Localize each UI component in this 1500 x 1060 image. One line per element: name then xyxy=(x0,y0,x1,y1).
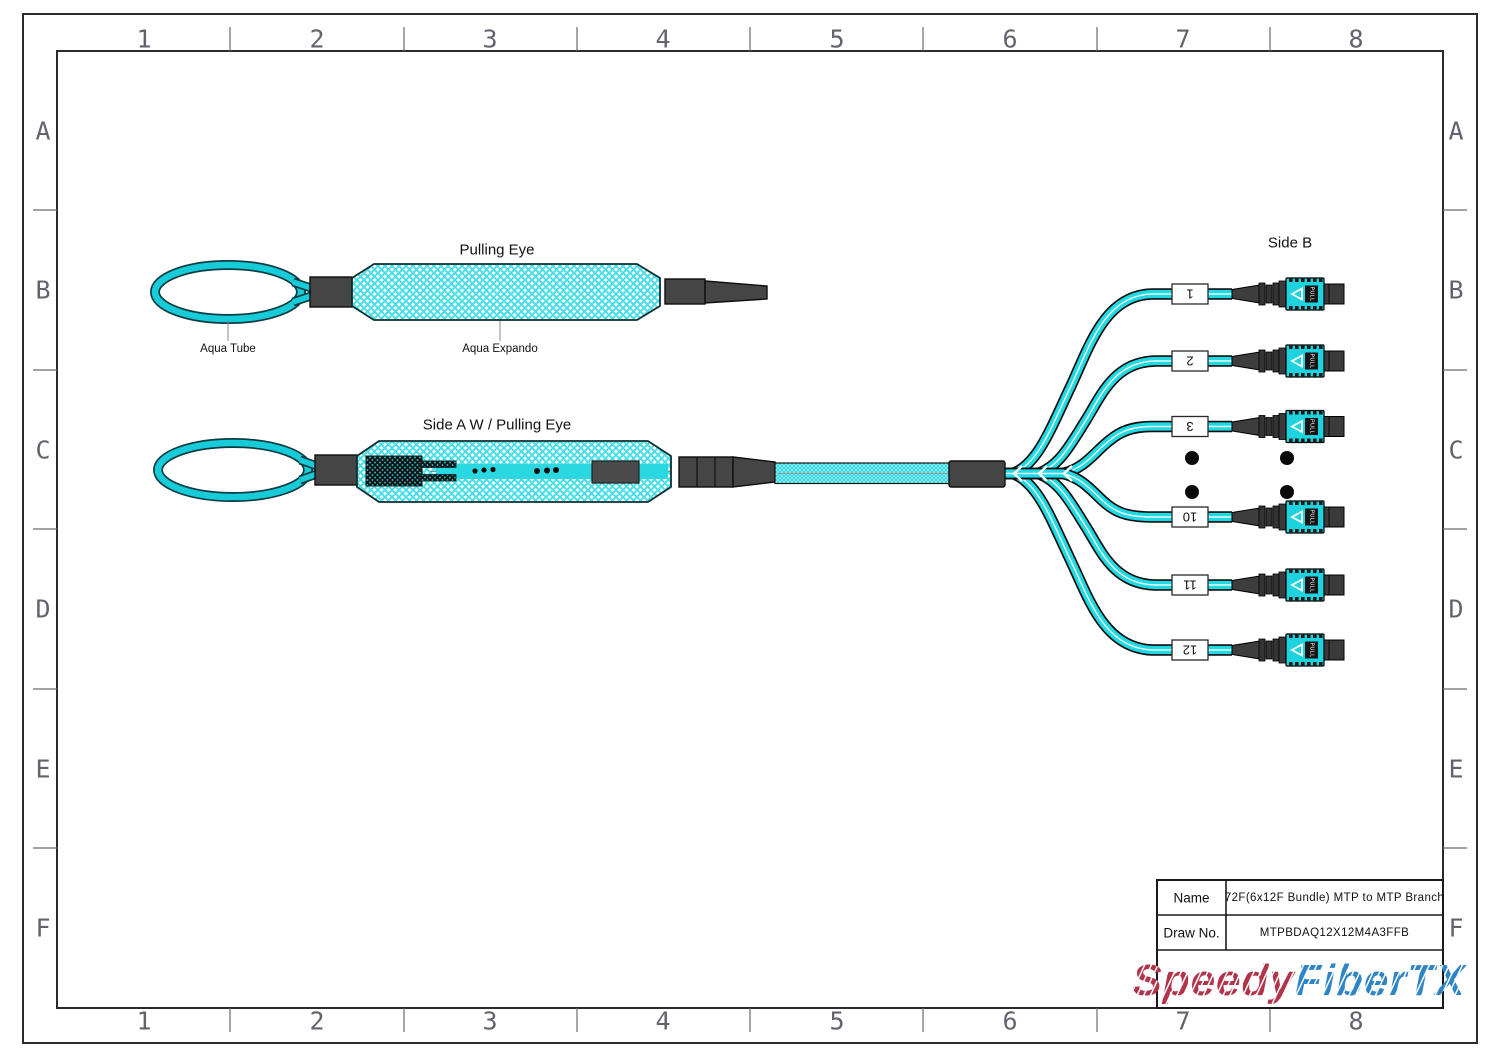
ellipsis-dots xyxy=(1185,451,1294,499)
grid-col-label: 1 xyxy=(136,1007,151,1036)
branch-cable-12 xyxy=(1003,474,1232,651)
side-b-branches: Side B 1 xyxy=(949,235,1344,667)
grid-row-label: C xyxy=(1448,436,1463,465)
grid-col-label: 4 xyxy=(655,25,670,54)
side-b-title: Side B xyxy=(1268,235,1312,252)
pulling-eye-right-ferrule xyxy=(665,279,705,304)
grid-col-label: 7 xyxy=(1175,1007,1190,1036)
drawing-canvas: PULL 1 2 3 4 xyxy=(0,0,1500,1060)
mtp-connector-1 xyxy=(1232,278,1344,310)
side-a-assembly: Side A W / Pulling Eye xyxy=(158,417,1063,503)
aqua-expando-label: Aqua Expando xyxy=(462,343,537,355)
inner-border xyxy=(57,51,1443,1008)
side-a-strain-relief xyxy=(733,457,775,487)
grid-row-label: D xyxy=(1448,595,1463,624)
grid-col-label: 5 xyxy=(829,1007,844,1036)
pulling-eye-detail: Pulling Eye Aqua Tube Aqua Expando xyxy=(155,242,767,356)
side-a-title: Side A W / Pulling Eye xyxy=(423,417,571,434)
grid-col-label: 2 xyxy=(309,1007,324,1036)
speedyfibertx-logo: SpeedyFiberTX xyxy=(1132,956,1467,1005)
title-block: Name 72F(6x12F Bundle) MTP to MTP Branch… xyxy=(1132,880,1467,1008)
aqua-expando-sleeve xyxy=(352,264,660,320)
mtp-connector-12 xyxy=(1232,634,1344,666)
mtp-connector-10 xyxy=(1232,501,1344,533)
logo-part-fibertx: FiberTX xyxy=(1295,956,1467,1005)
branch-label-1: 1 xyxy=(1172,284,1208,304)
furcation-block xyxy=(949,461,1005,487)
draw-no-value: MTPBDAQ12X12M4A3FFB xyxy=(1260,927,1409,939)
grid-row-label: F xyxy=(35,914,50,943)
branch-label-2: 2 xyxy=(1172,351,1208,371)
branch-label-text: 11 xyxy=(1183,578,1197,593)
grid-col-label: 3 xyxy=(482,25,497,54)
side-a-exit-connector xyxy=(679,457,733,487)
branch-cable-1 xyxy=(1003,294,1232,474)
side-a-left-ferrule xyxy=(315,455,357,485)
branch-label-text: 10 xyxy=(1183,510,1197,525)
grid-row-label: E xyxy=(35,755,50,784)
branch-label-text: 3 xyxy=(1186,419,1193,434)
aqua-tube-label: Aqua Tube xyxy=(200,343,256,355)
name-label: Name xyxy=(1173,891,1209,906)
pulling-eye-title: Pulling Eye xyxy=(459,242,534,259)
grid-row-label: F xyxy=(1448,914,1463,943)
engineering-drawing-page: PULL 1 2 3 4 xyxy=(0,0,1500,1060)
grid-col-label: 3 xyxy=(482,1007,497,1036)
grid-row-label: B xyxy=(35,276,50,305)
draw-no-label: Draw No. xyxy=(1163,926,1219,941)
branch-label-12: 12 xyxy=(1172,640,1208,660)
logo-part-speedy: Speedy xyxy=(1132,956,1296,1005)
inner-connector-prong xyxy=(420,461,456,468)
branch-label-10: 10 xyxy=(1172,507,1208,527)
grid-col-label: 7 xyxy=(1175,25,1190,54)
pulling-eye-cone-tip xyxy=(705,281,767,303)
name-value: 72F(6x12F Bundle) MTP to MTP Branch xyxy=(1225,892,1444,904)
branch-label-text: 1 xyxy=(1186,287,1193,302)
mtp-connector-2 xyxy=(1232,345,1344,377)
branch-label-text: 2 xyxy=(1186,354,1193,369)
inner-connector-prong xyxy=(420,475,456,482)
grid-row-label: A xyxy=(1448,117,1463,146)
grid-row-label: B xyxy=(1448,276,1463,305)
grid-col-label: 5 xyxy=(829,25,844,54)
grid-col-label: 1 xyxy=(136,25,151,54)
grid-col-label: 2 xyxy=(309,25,324,54)
inner-crimp-block xyxy=(592,461,639,483)
mtp-connector-11 xyxy=(1232,569,1344,601)
grid-col-label: 6 xyxy=(1002,1007,1017,1036)
grid-row-label: D xyxy=(35,595,50,624)
grid-col-label: 4 xyxy=(655,1007,670,1036)
grid-col-label: 8 xyxy=(1348,25,1363,54)
mtp-connector-3 xyxy=(1232,411,1344,443)
grid-col-label: 6 xyxy=(1002,25,1017,54)
branch-labels: 1 2 3 10 11 12 xyxy=(1172,284,1208,660)
grid-row-label: C xyxy=(35,436,50,465)
pulling-eye-left-ferrule xyxy=(310,277,352,307)
branch-label-3: 3 xyxy=(1172,417,1208,437)
grid-row-label: A xyxy=(35,117,50,146)
inner-connector-body xyxy=(366,456,422,486)
grid-col-label: 8 xyxy=(1348,1007,1363,1036)
branch-label-text: 12 xyxy=(1183,643,1197,658)
branch-label-11: 11 xyxy=(1172,575,1208,595)
grid-row-label: E xyxy=(1448,755,1463,784)
